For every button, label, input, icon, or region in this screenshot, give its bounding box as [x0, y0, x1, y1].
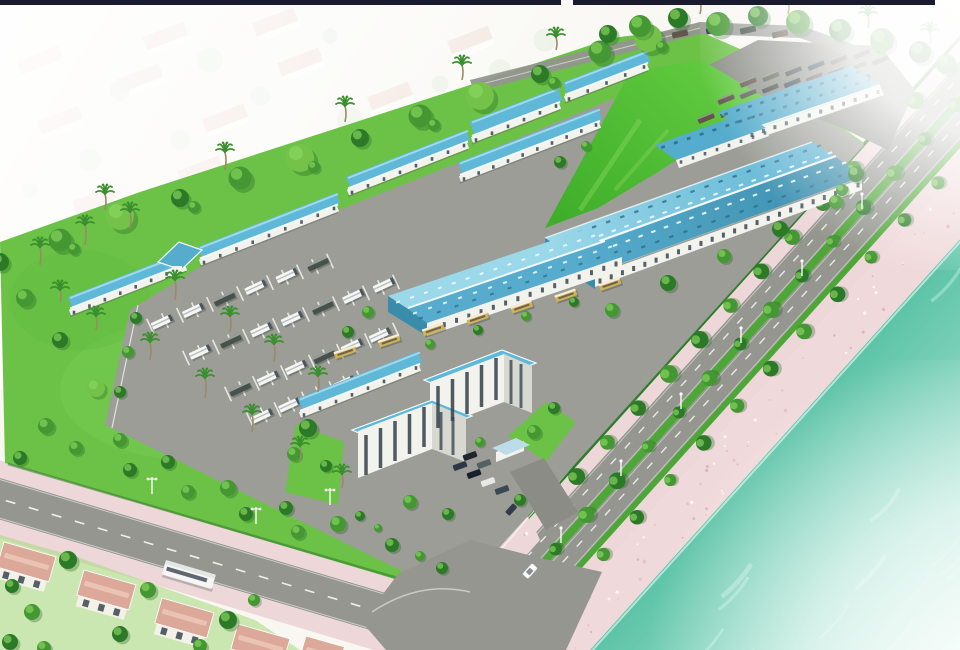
- tree-highlight: [222, 481, 230, 489]
- tree-highlight: [54, 333, 62, 341]
- top-right-fade: [700, 0, 960, 270]
- window-strip: [451, 379, 455, 421]
- window-strip: [465, 372, 469, 414]
- roof-dash: [367, 184, 370, 188]
- tree-highlight: [173, 190, 182, 199]
- tree-highlight: [142, 583, 150, 591]
- tree-highlight: [582, 142, 587, 147]
- tree-highlight: [124, 464, 131, 471]
- tree-highlight: [162, 456, 169, 463]
- top-border-line: [0, 0, 561, 5]
- lamp-head: [325, 489, 328, 492]
- tree-highlight: [6, 580, 13, 587]
- tree-highlight: [182, 486, 189, 493]
- roof-dash: [73, 311, 76, 315]
- window-strip: [440, 412, 443, 450]
- roof-dash: [335, 400, 338, 404]
- roof-dash: [284, 227, 287, 231]
- roof-dash: [150, 279, 153, 283]
- roof-dash: [88, 304, 91, 308]
- roof-dash: [316, 213, 319, 217]
- roof-dash: [463, 144, 466, 148]
- tree-highlight: [61, 552, 70, 561]
- roof-dash: [492, 305, 495, 310]
- top-border-line: [573, 0, 935, 5]
- tree-highlight: [437, 563, 443, 569]
- window-strip: [393, 421, 397, 461]
- bottom-right-fade: [560, 360, 960, 650]
- roof-dash: [516, 296, 519, 301]
- plaza-speckle: [525, 532, 528, 535]
- roof-dash: [491, 131, 494, 135]
- tree-highlight: [231, 168, 243, 180]
- tree-highlight: [14, 452, 21, 459]
- tree-highlight: [109, 204, 123, 218]
- roof-dash: [383, 177, 386, 181]
- roof-dash: [605, 81, 608, 85]
- window-strip: [520, 364, 523, 408]
- roof-dash: [268, 234, 271, 238]
- roof-dash: [447, 150, 450, 154]
- tree-highlight: [288, 448, 295, 455]
- roof-dash: [586, 89, 589, 93]
- roof-dash: [595, 123, 598, 127]
- window-strip: [379, 428, 383, 468]
- lamp-head: [333, 489, 336, 492]
- tree-highlight: [249, 595, 255, 601]
- roof-dash: [319, 406, 322, 410]
- tree-highlight: [221, 612, 230, 621]
- tree-highlight: [375, 525, 379, 529]
- roof-dash: [463, 177, 466, 181]
- tree-highlight: [353, 130, 362, 139]
- roof-dash: [477, 171, 480, 175]
- tree-highlight: [301, 420, 310, 429]
- roof-dash: [300, 220, 303, 224]
- roof-dash: [688, 245, 691, 250]
- tree-highlight: [89, 380, 98, 389]
- roof-dash: [367, 386, 370, 390]
- roof-dash: [610, 274, 613, 279]
- roof-dash: [203, 261, 206, 265]
- tree-highlight: [555, 157, 561, 163]
- tree-highlight: [606, 304, 613, 311]
- tree-highlight: [69, 244, 75, 250]
- tree-highlight: [429, 120, 435, 126]
- roof-dash: [565, 279, 568, 284]
- tree-highlight: [38, 642, 45, 649]
- tree-highlight: [386, 539, 393, 546]
- tree-highlight: [416, 552, 421, 557]
- roof-dash: [303, 413, 306, 417]
- aerial-rendering: Aerial architectural rendering of a seas…: [0, 0, 960, 650]
- window-strip: [364, 435, 368, 475]
- tree-highlight: [189, 202, 195, 208]
- tree-highlight: [123, 347, 129, 353]
- tree-highlight: [70, 442, 77, 449]
- tree-highlight: [404, 496, 411, 503]
- lamp-head: [147, 478, 150, 481]
- roof-dash: [415, 366, 418, 370]
- tree-highlight: [114, 627, 122, 635]
- roof-dash: [399, 373, 402, 377]
- roof-dash: [235, 247, 238, 251]
- roof-dash: [383, 380, 386, 384]
- roof-dash: [504, 301, 507, 306]
- tree-highlight: [522, 312, 527, 317]
- tree-highlight: [40, 419, 48, 427]
- lamp-head: [155, 478, 158, 481]
- roof-dash: [251, 240, 254, 244]
- window-strip: [480, 365, 484, 407]
- roof-dash: [399, 171, 402, 175]
- roof-dash: [666, 253, 669, 258]
- tree-highlight: [51, 230, 63, 242]
- roof-dash: [134, 285, 137, 289]
- window-strip: [452, 417, 455, 455]
- tree-highlight: [528, 426, 535, 433]
- tree-highlight: [356, 512, 361, 517]
- roof-dash: [602, 266, 605, 271]
- roof-dash: [351, 191, 354, 195]
- tree-highlight: [131, 313, 137, 319]
- roof-dash: [455, 318, 458, 323]
- roof-dash: [415, 164, 418, 168]
- roof-dash: [692, 156, 695, 159]
- tree-highlight: [18, 290, 27, 299]
- roof-dash: [565, 135, 568, 139]
- window-strip: [494, 358, 498, 400]
- roof-dash: [119, 291, 122, 295]
- roof-dash: [624, 73, 627, 77]
- tree-highlight: [411, 106, 423, 118]
- roof-dash: [551, 141, 554, 145]
- tree-highlight: [549, 78, 555, 84]
- roof-dash: [536, 147, 539, 151]
- tree-highlight: [533, 66, 542, 75]
- tree-highlight: [426, 340, 431, 345]
- tree-highlight: [631, 17, 642, 28]
- window-strip: [422, 407, 426, 447]
- tree-highlight: [26, 605, 34, 613]
- roof-dash: [333, 207, 336, 211]
- tree-highlight: [292, 526, 299, 533]
- roof-dash: [655, 258, 658, 263]
- window-strip: [436, 386, 440, 428]
- tree-highlight: [476, 438, 481, 443]
- roof-dash: [632, 266, 635, 271]
- tree-highlight: [363, 307, 369, 313]
- roof-dash: [507, 125, 510, 129]
- tree-highlight: [443, 509, 449, 515]
- tree-highlight: [194, 640, 201, 647]
- window-strip: [408, 414, 412, 454]
- roof-dash: [529, 292, 532, 297]
- roof-dash: [492, 165, 495, 169]
- roof-dash: [539, 111, 542, 115]
- tree-highlight: [309, 162, 315, 168]
- tree-highlight: [570, 298, 575, 303]
- tree-highlight: [280, 502, 287, 509]
- window-strip: [510, 360, 513, 404]
- roof-dash: [431, 157, 434, 161]
- tree-highlight: [601, 26, 610, 35]
- screenshot-canvas: Aerial architectural rendering of a seas…: [0, 0, 960, 650]
- roof-dash: [578, 275, 581, 280]
- roof-dash: [599, 279, 602, 284]
- tree-highlight: [240, 508, 247, 515]
- roof-dash: [523, 118, 526, 122]
- tree-highlight: [289, 146, 303, 160]
- tree-highlight: [114, 434, 121, 441]
- roof-dash: [615, 262, 618, 267]
- roof-dash: [521, 153, 524, 157]
- roof-dash: [677, 249, 680, 254]
- tree-highlight: [591, 42, 603, 54]
- tree-highlight: [657, 42, 663, 48]
- roof-dash: [553, 283, 556, 288]
- lamp-head: [251, 508, 254, 511]
- tree-highlight: [549, 403, 555, 409]
- lamp-head: [739, 326, 742, 329]
- tree-highlight: [4, 635, 12, 643]
- roof-dash: [590, 270, 593, 275]
- roof-dash: [219, 254, 222, 258]
- tree-highlight: [670, 10, 680, 20]
- roof-dash: [104, 298, 107, 302]
- roof-dash: [580, 129, 583, 133]
- roof-dash: [643, 262, 646, 267]
- tree-highlight: [662, 276, 670, 284]
- roof-dash: [351, 393, 354, 397]
- tree-highlight: [474, 326, 479, 331]
- tree-highlight: [343, 327, 349, 333]
- tree-highlight: [469, 84, 483, 98]
- roof-dash: [541, 288, 544, 293]
- roof-dash: [621, 270, 624, 275]
- tree-highlight: [332, 517, 340, 525]
- roof-dash: [680, 160, 683, 163]
- roof-dash: [643, 65, 646, 69]
- roof-dash: [475, 138, 478, 142]
- tree-highlight: [115, 387, 121, 393]
- roof-dash: [507, 159, 510, 163]
- roof-dash: [568, 97, 571, 101]
- roof-dash: [555, 104, 558, 108]
- tree-highlight: [515, 495, 521, 501]
- tree-highlight: [321, 461, 327, 467]
- lamp-head: [259, 508, 262, 511]
